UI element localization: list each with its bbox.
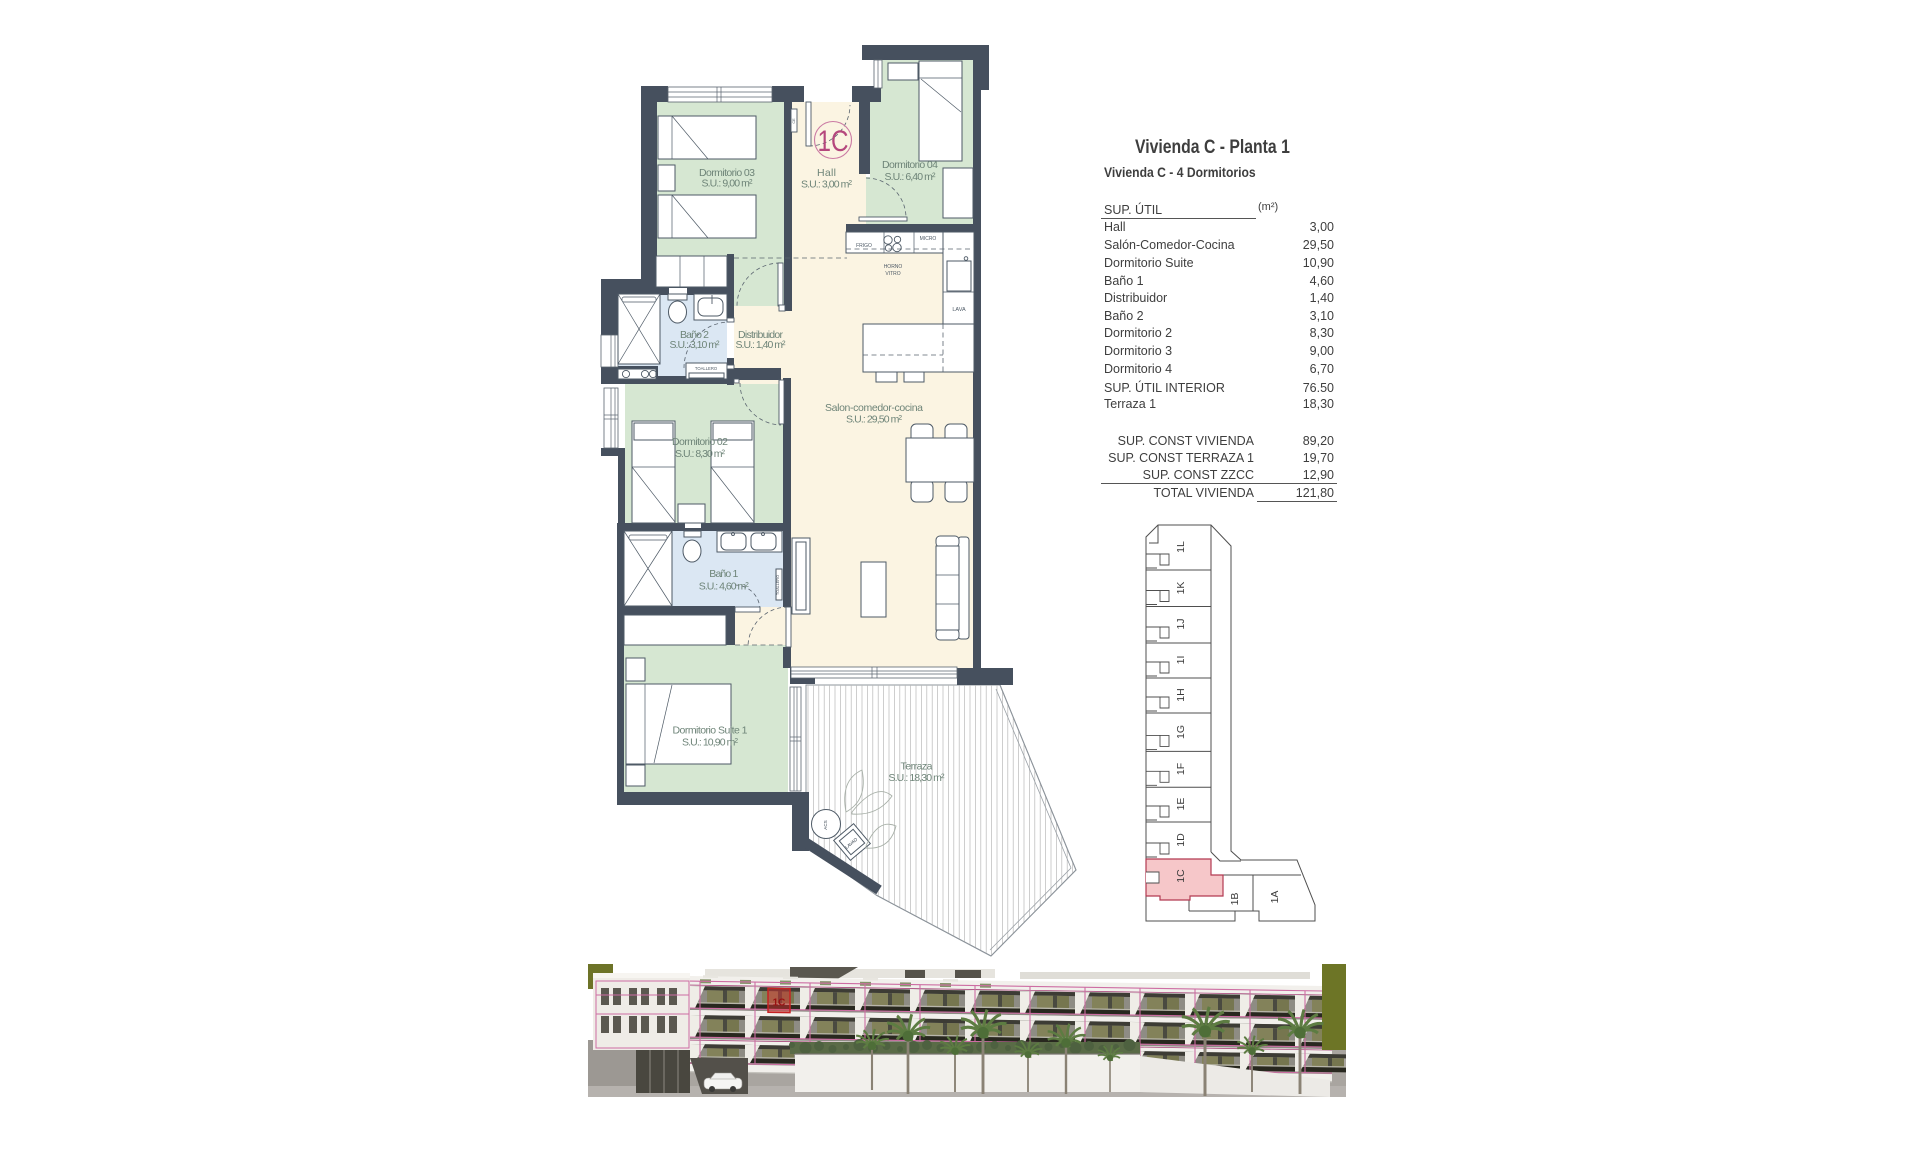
svg-text:1H: 1H: [1175, 688, 1187, 701]
svg-text:Salon-comedor-cocina: Salon-comedor-cocina: [825, 402, 923, 414]
svg-text:MICRO: MICRO: [920, 236, 937, 242]
svg-text:Baño 1: Baño 1: [709, 568, 738, 580]
svg-text:1G: 1G: [1175, 725, 1187, 739]
svg-text:1K: 1K: [1175, 582, 1187, 595]
svg-text:Dormitorio 04: Dormitorio 04: [882, 159, 938, 171]
svg-text:1C: 1C: [1175, 869, 1187, 883]
svg-text:HORNO: HORNO: [884, 264, 903, 270]
svg-text:VITRO: VITRO: [885, 271, 900, 277]
svg-text:S.U.: 10,90 m²: S.U.: 10,90 m²: [682, 737, 739, 749]
svg-text:1I: 1I: [1175, 656, 1187, 665]
svg-text:FRIGO: FRIGO: [856, 243, 872, 249]
svg-text:1F: 1F: [1175, 763, 1187, 775]
svg-text:Hall: Hall: [817, 167, 836, 179]
svg-text:1A: 1A: [1269, 891, 1281, 904]
svg-text:1B: 1B: [1229, 893, 1241, 906]
svg-text:LAVA: LAVA: [952, 307, 966, 313]
svg-text:Dormitorio 02: Dormitorio 02: [672, 436, 728, 448]
svg-text:Dormitorio Suite 1: Dormitorio Suite 1: [673, 725, 748, 737]
svg-text:1D: 1D: [1175, 833, 1187, 847]
svg-text:S.U.: 4,60 m²: S.U.: 4,60 m²: [699, 581, 750, 593]
svg-text:TOALLERO: TOALLERO: [776, 575, 780, 595]
svg-text:S.U.: 8,30 m²: S.U.: 8,30 m²: [675, 448, 726, 460]
svg-text:CE: CE: [792, 118, 796, 124]
svg-text:1J: 1J: [1175, 618, 1187, 629]
svg-text:1C: 1C: [818, 125, 849, 158]
svg-text:1E: 1E: [1175, 798, 1187, 811]
svg-text:S.U.: 3,10 m²: S.U.: 3,10 m²: [670, 339, 721, 351]
svg-text:S.U.: 1,40 m²: S.U.: 1,40 m²: [736, 339, 787, 351]
svg-text:Terraza: Terraza: [901, 761, 933, 773]
svg-text:S.U.: 9,00 m²: S.U.: 9,00 m²: [702, 178, 754, 190]
svg-text:1L: 1L: [1175, 541, 1187, 553]
svg-text:S.U.: 3,00 m²: S.U.: 3,00 m²: [801, 179, 853, 191]
svg-text:S.U.: 29,50 m²: S.U.: 29,50 m²: [846, 414, 903, 426]
svg-text:TOALLERO: TOALLERO: [695, 366, 718, 371]
svg-text:S.U.: 18,30 m²: S.U.: 18,30 m²: [889, 772, 946, 784]
svg-text:ACS: ACS: [823, 820, 828, 829]
svg-text:1C: 1C: [773, 997, 786, 1008]
svg-text:S.U.: 6,40 m²: S.U.: 6,40 m²: [885, 171, 937, 183]
